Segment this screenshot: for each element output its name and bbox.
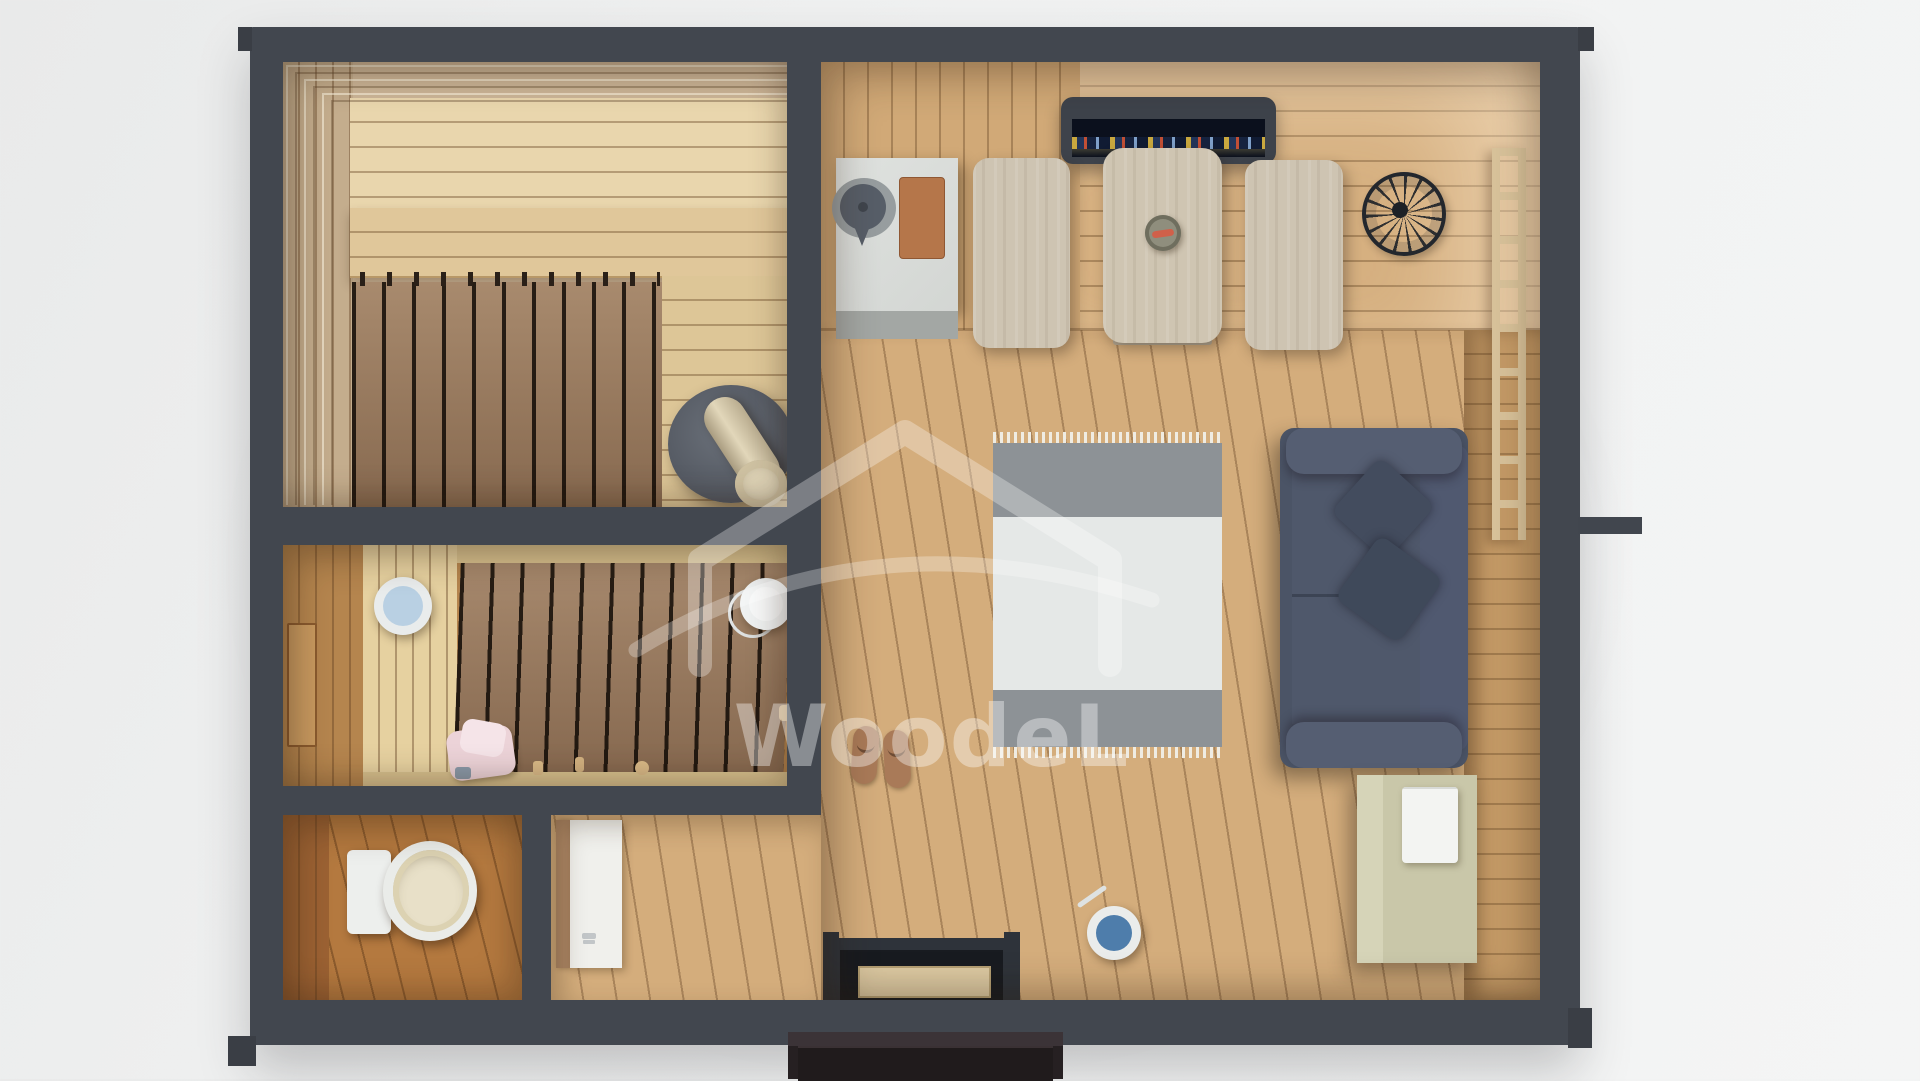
main-room: [821, 62, 1540, 1000]
wall-foot-bottom-left: [228, 1036, 256, 1066]
kettle-lid: [858, 202, 868, 212]
entry-step-lower: [798, 1046, 1053, 1081]
flip-flop-left: [850, 725, 880, 785]
rug-band-top: [993, 443, 1222, 517]
washroom-bottom-ledge: [363, 772, 787, 786]
washroom-white-pail-inner: [749, 587, 783, 621]
ladder-rail-left: [1492, 148, 1500, 540]
washroom-wood-item-3: [779, 705, 787, 721]
wall-foot-bottom-right: [1568, 1008, 1592, 1048]
toilet-left-paneling: [283, 815, 329, 1000]
roof-beam-right: [1578, 517, 1642, 534]
wire-basket-hub: [1392, 202, 1408, 218]
wall-washroom-toilet: [283, 786, 821, 815]
bench-right: [1245, 160, 1343, 350]
entry-steps: [788, 1032, 1063, 1079]
wall-main-room-left: [787, 62, 821, 815]
rug-fringe-top: [993, 432, 1222, 443]
washroom: [283, 545, 787, 786]
entrance-door-mat: [858, 966, 991, 998]
rug-white-field: [993, 517, 1222, 690]
washroom-top-ledge: [457, 545, 787, 563]
washroom-wood-item-2: [575, 757, 584, 772]
washroom-brush: [455, 767, 471, 779]
sauna-left-paneling: [283, 62, 353, 507]
door-handle: [582, 933, 596, 939]
sage-cabinet-side: [1357, 775, 1383, 963]
stove-chimney-cap: [735, 460, 787, 507]
floor-plan-canvas: { "scene": { "title": "3D top-down floor…: [0, 0, 1920, 1079]
flip-flop-left-strap: [856, 735, 875, 753]
washroom-wood-item-1: [533, 761, 543, 775]
sofa: [1280, 428, 1468, 768]
flip-flop-right-strap: [887, 740, 906, 758]
flip-flop-right: [883, 729, 912, 788]
sauna-top-tier: [350, 98, 790, 208]
sauna-mid-tier: [350, 208, 790, 278]
wall-toilet-hallway: [522, 815, 551, 1000]
hallway: [551, 815, 821, 1000]
bench-left: [973, 158, 1070, 348]
toilet-seat: [393, 850, 469, 932]
sofa-armrest-bottom: [1286, 722, 1462, 768]
wall-sauna-washroom: [283, 507, 821, 545]
entrance-door-frame-tab-right: [1004, 932, 1020, 940]
sauna-duckboard-floor: [352, 282, 662, 507]
door-leaf-frame: [556, 820, 570, 968]
wall-notch-top-left: [238, 27, 252, 51]
washroom-wall-niche: [287, 623, 317, 747]
washroom-ladle: [635, 761, 649, 775]
cabinet-towel: [1402, 787, 1458, 863]
wall-ladder: [1492, 148, 1526, 540]
wall-notch-top-right: [1578, 27, 1594, 51]
blue-bucket-water: [1096, 915, 1132, 951]
kitchen-counter-front: [836, 311, 958, 339]
door-leaf-face: [570, 820, 622, 968]
entry-step-upper: [788, 1032, 1063, 1046]
sauna-room: [283, 62, 790, 507]
sage-cabinet: [1357, 775, 1477, 963]
washroom-blue-basin-water: [383, 586, 423, 626]
ladder-rail-right: [1518, 148, 1526, 540]
entrance-door-frame-tab-left: [823, 932, 839, 940]
cutting-board: [899, 177, 945, 259]
toilet-room: [283, 815, 522, 1000]
rug-band-bottom: [993, 690, 1222, 747]
sauna-duckboard-gap-row: [360, 272, 660, 286]
rug-fringe-bottom: [993, 747, 1222, 758]
